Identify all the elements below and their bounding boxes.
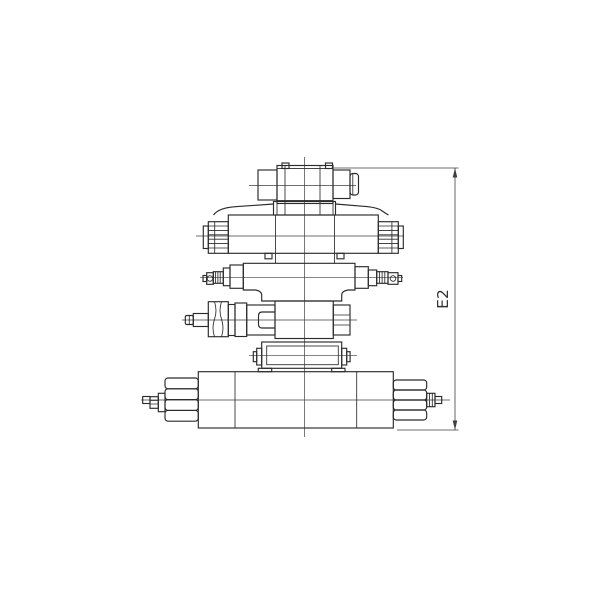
stud-nut-lines [150, 401, 158, 405]
tier5-left-cap2 [253, 352, 256, 362]
boss-verticals [277, 204, 333, 216]
tier4-knob-knurl [213, 302, 223, 337]
tier6-left-stud [143, 393, 165, 411]
tier5-left-cap [257, 348, 262, 365]
tier1-inner-verticals [285, 166, 320, 204]
nut [165, 378, 198, 389]
tier1-right-end-cap [350, 174, 359, 196]
arrowhead-up [453, 168, 458, 178]
tier2-right-solenoid [378, 222, 398, 254]
nut [393, 380, 426, 390]
tier3-left-tip [203, 276, 207, 282]
column-gap-edges [276, 253, 335, 263]
tier4-knob [208, 302, 228, 337]
tier2-left-solenoid [208, 222, 228, 254]
nut [165, 410, 198, 421]
centerlines [141, 157, 450, 437]
tier3-right-nut-hole [390, 276, 396, 282]
nut [165, 389, 198, 400]
tier3-right-nut [388, 273, 398, 285]
tier3-left-cap1 [230, 265, 243, 288]
adapter-block [253, 342, 350, 372]
arrowhead-down [453, 421, 458, 431]
tier6-right-nut-stack [393, 380, 426, 420]
dimension-label: E2 [434, 289, 452, 309]
tier2-left-solenoid-ribs [208, 222, 228, 254]
throttle-module [203, 263, 402, 301]
nut [393, 390, 426, 400]
tier5-right-cap [342, 348, 347, 365]
tier2-body [228, 215, 378, 253]
plate-curve-right [336, 204, 389, 215]
locating-pin-right [337, 253, 344, 258]
nut [393, 410, 426, 420]
locating-pin-left [265, 253, 272, 258]
top-solenoid-block [258, 163, 359, 204]
stud-collar [158, 393, 165, 411]
nut [165, 400, 198, 411]
tier3-body [243, 263, 355, 301]
nut [393, 400, 426, 410]
tier2-column-edges [276, 215, 335, 253]
valve-assembly-drawing: E2 [0, 0, 600, 600]
tier3-left-nut-hole [207, 276, 213, 282]
tier2-right-step [398, 226, 403, 249]
directional-valve-body [203, 215, 403, 263]
tier6-left-nut-stack [165, 378, 198, 421]
tier5-right-cap2 [347, 352, 350, 362]
tier3-left-nut [207, 273, 214, 285]
plate-curve-left [214, 204, 274, 215]
tier2-left-step [203, 226, 208, 249]
tier3-left-cap2 [223, 268, 230, 286]
tier2-right-solenoid-ribs [378, 222, 398, 254]
tier1-left-cap [258, 170, 277, 200]
tier1-right-cap [333, 170, 350, 199]
drawing-canvas: E2 [0, 0, 600, 600]
stud-nut [150, 397, 158, 409]
tier3-right-tip [398, 276, 402, 282]
